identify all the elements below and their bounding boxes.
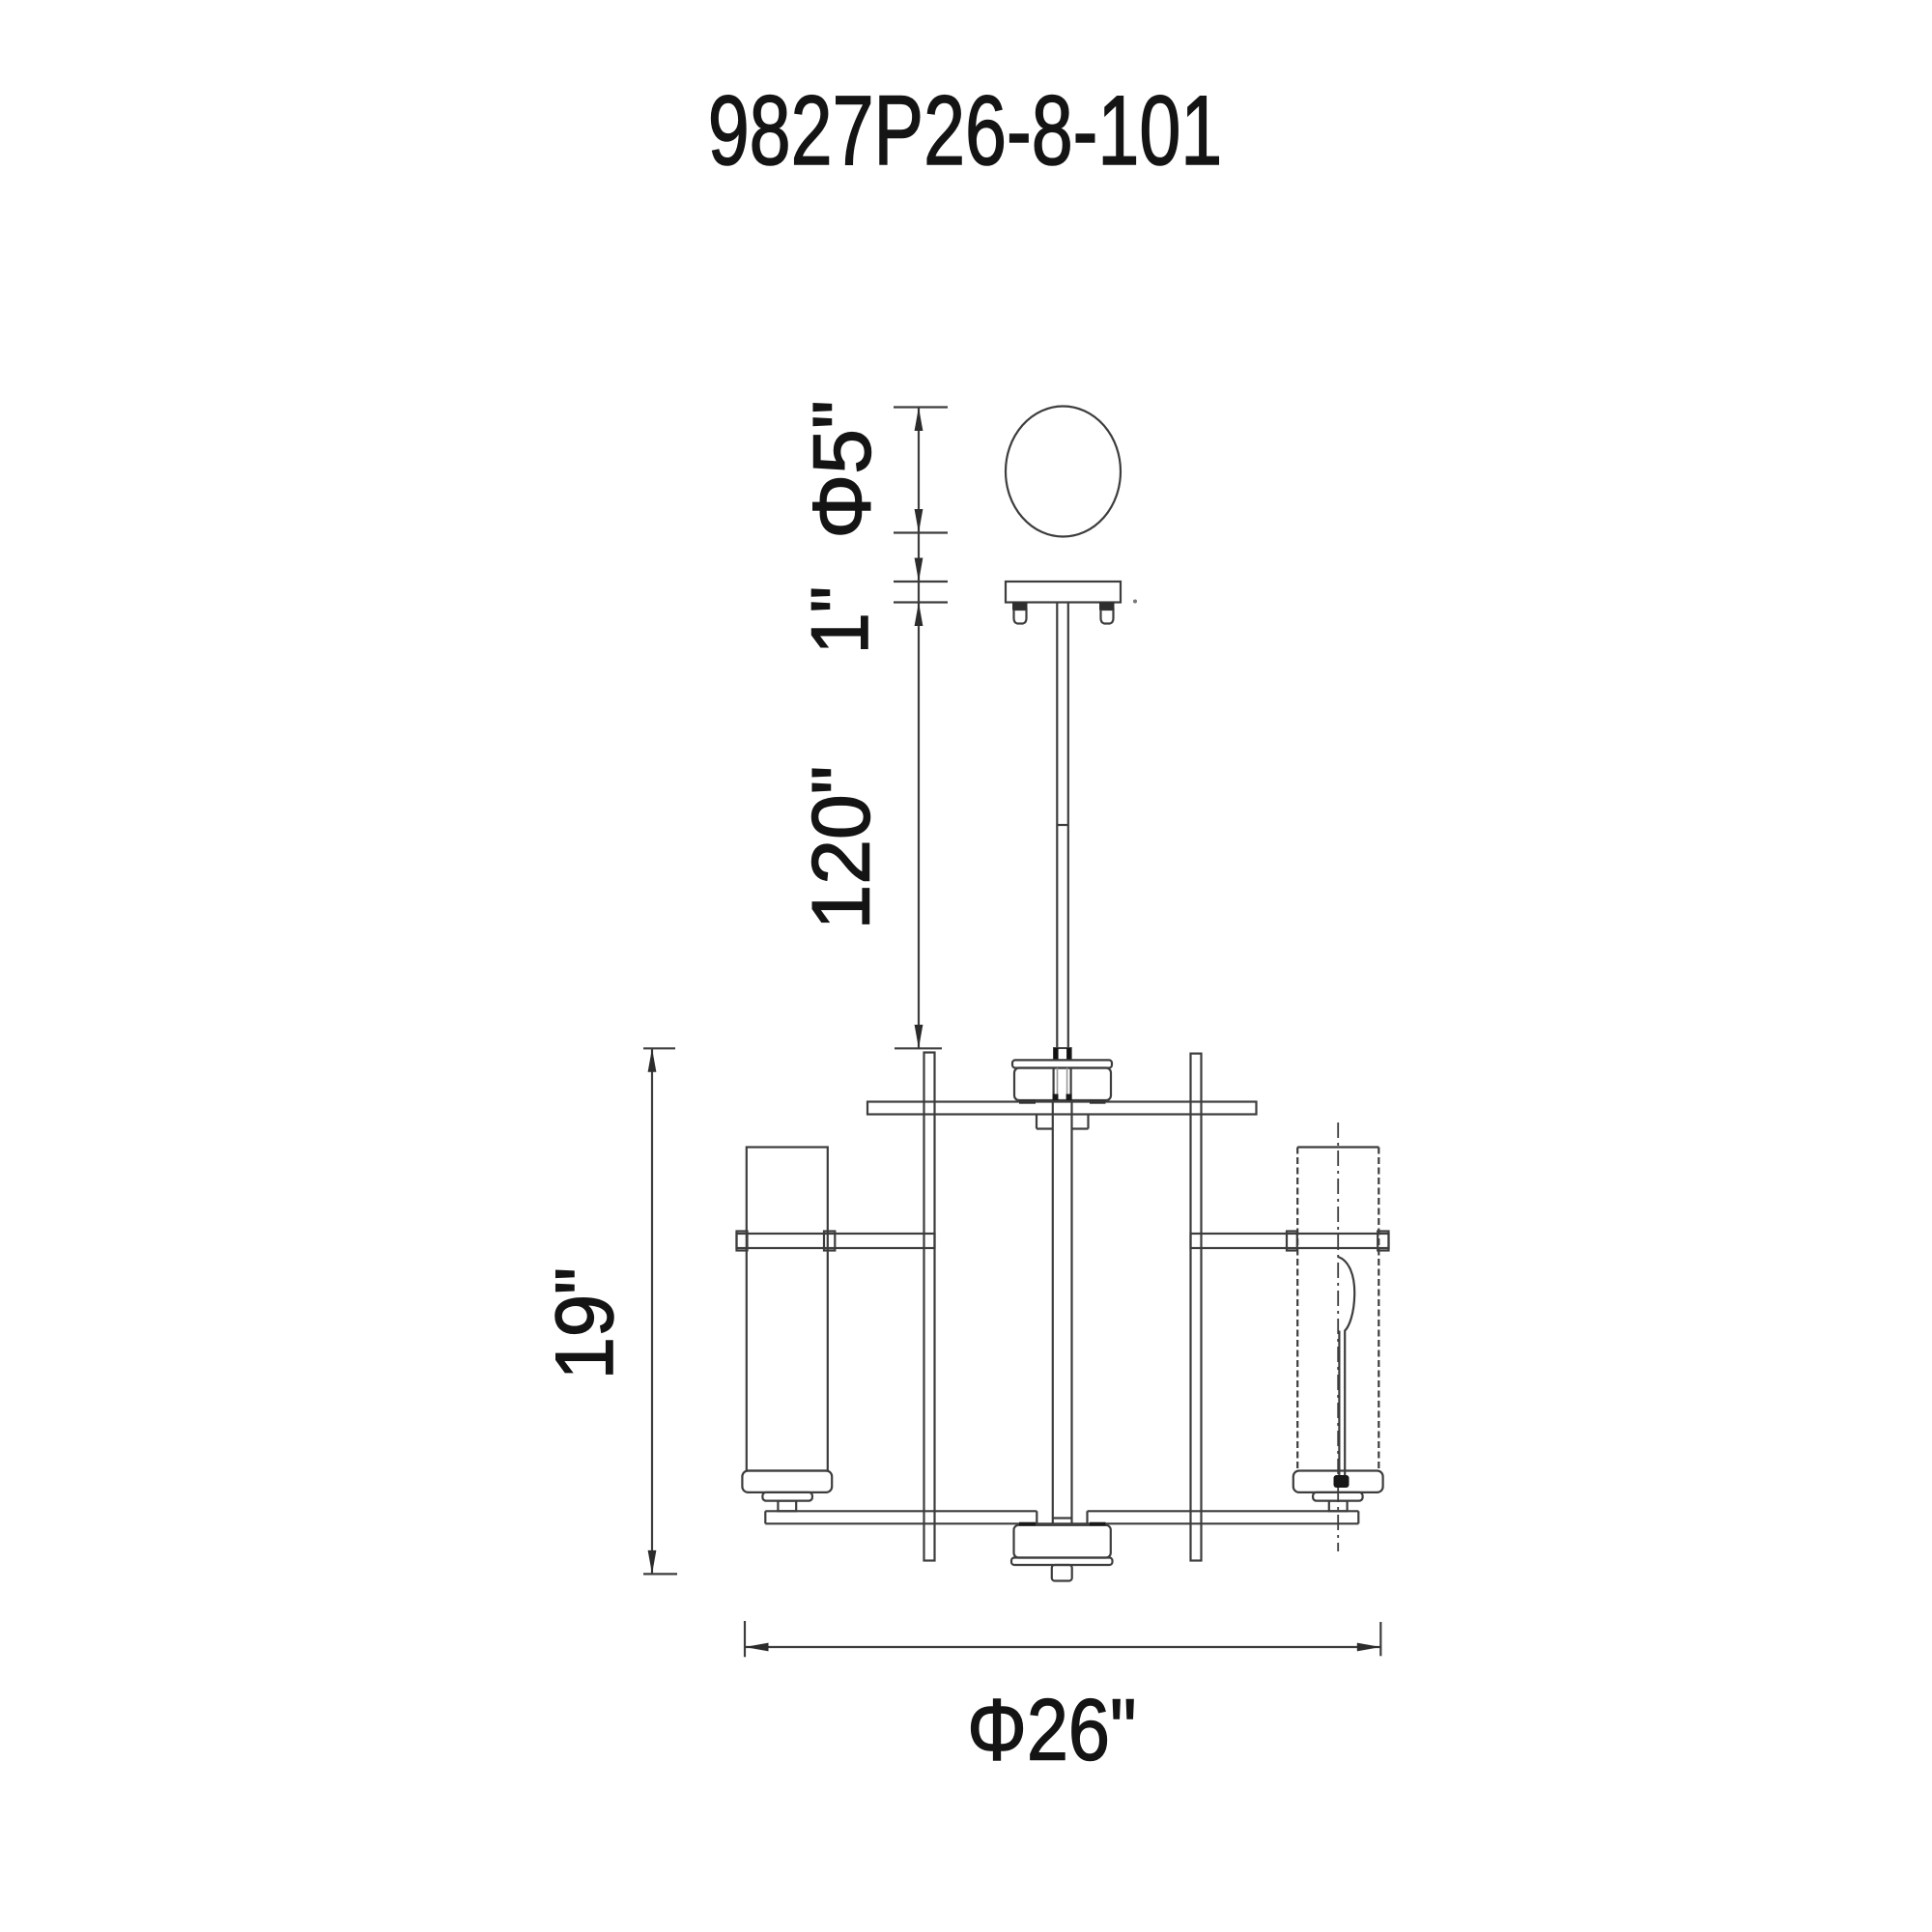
svg-text:Φ26": Φ26" xyxy=(967,1681,1136,1778)
svg-text:1": 1" xyxy=(795,586,886,654)
svg-text:Φ5": Φ5" xyxy=(796,400,887,539)
svg-text:9827P26-8-101: 9827P26-8-101 xyxy=(708,76,1223,186)
svg-text:120": 120" xyxy=(795,766,886,930)
svg-text:19": 19" xyxy=(540,1267,631,1379)
